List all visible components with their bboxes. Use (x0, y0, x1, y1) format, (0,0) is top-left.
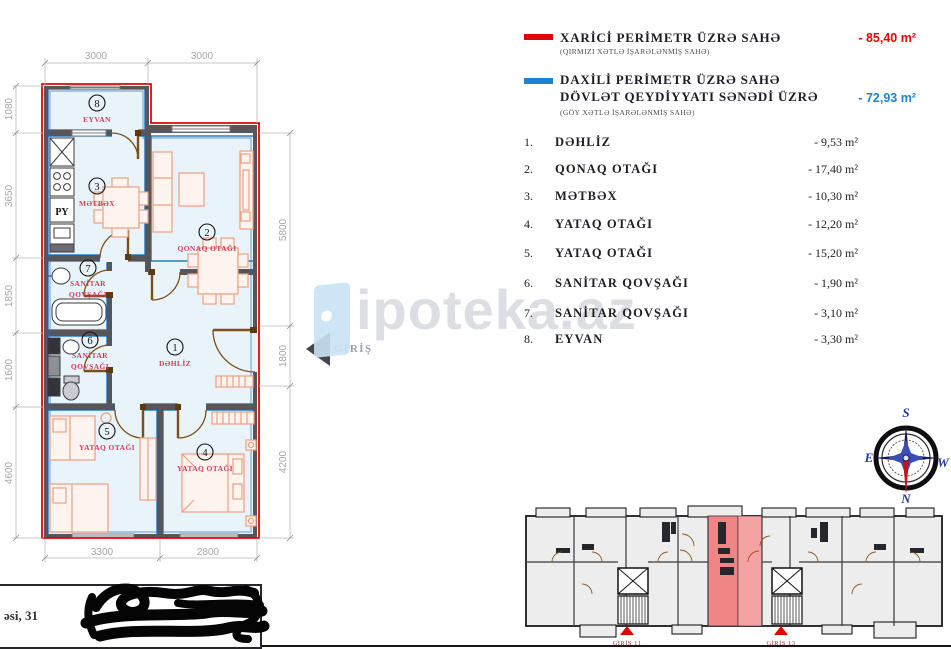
outer-perimeter-row: XARİCİ PERİMETR ÜZRƏ SAHƏ (QIRMIZI XƏTLƏ… (524, 30, 916, 66)
entrance1-triangle-icon (620, 626, 634, 635)
room-list-item: 7. SANİTAR QOVŞAĞI - 3,10 m² (524, 306, 916, 322)
inner-perimeter-value: - 72,93 m² (858, 91, 916, 105)
window-living (172, 126, 230, 132)
compass-n: N (900, 491, 911, 505)
svg-text:3650: 3650 (4, 184, 15, 207)
svg-text:2800: 2800 (197, 547, 220, 558)
svg-text:4200: 4200 (278, 450, 289, 473)
svg-text:6: 6 (87, 336, 92, 347)
svg-text:1080: 1080 (4, 97, 15, 120)
bed-small (50, 416, 95, 460)
svg-text:QONAQ OTAĞI: QONAQ OTAĞI (177, 243, 236, 253)
svg-text:MƏTBƏX: MƏTBƏX (79, 199, 115, 208)
redaction-scribble (78, 579, 270, 648)
svg-text:4600: 4600 (4, 461, 15, 484)
svg-text:2: 2 (204, 228, 209, 239)
svg-text:SANİTAR: SANİTAR (70, 278, 106, 288)
building-key-plan: GİRİŞ 11 GİRİŞ 13 (522, 504, 950, 648)
svg-text:DƏHLİZ: DƏHLİZ (159, 358, 191, 368)
window-eyvan (70, 86, 120, 89)
hatched-wardrobe (212, 412, 254, 424)
outer-perimeter-value: - 85,40 m² (858, 31, 916, 45)
compass-s: S (902, 405, 909, 420)
svg-text:QOVŞAĞI: QOVŞAĞI (71, 361, 109, 371)
svg-text:1: 1 (172, 343, 177, 354)
coffee-table (179, 173, 204, 206)
kitchen-appliances (50, 138, 74, 252)
outer-perimeter-subtitle: (QIRMIZI XƏTLƏ İŞARƏLƏNMİŞ SAHƏ) (560, 47, 710, 56)
svg-text:YATAQ OTAĞI: YATAQ OTAĞI (79, 442, 135, 452)
sofa (153, 152, 172, 232)
room-list-item: 5. YATAQ OTAĞI - 15,20 m² (524, 246, 916, 262)
floorplan-page: PY (0, 0, 951, 649)
svg-text:SANİTAR: SANİTAR (72, 350, 108, 360)
py-label: PY (55, 207, 69, 218)
compass-w: W (937, 455, 950, 470)
svg-text:YATAQ OTAĞI: YATAQ OTAĞI (177, 463, 233, 473)
room-list-item: 2. QONAQ OTAĞI - 17,40 m² (524, 162, 916, 178)
svg-text:EYVAN: EYVAN (83, 115, 111, 124)
door-logo-icon (314, 282, 350, 358)
room-list-item: 4. YATAQ OTAĞI - 12,20 m² (524, 217, 916, 233)
address-text: əsi, 31 (4, 608, 38, 624)
dining-table (198, 248, 238, 294)
outer-perimeter-title: XARİCİ PERİMETR ÜZRƏ SAHƏ (560, 30, 781, 46)
svg-text:1850: 1850 (4, 284, 15, 307)
room-list-item: 1. DƏHLİZ - 9,53 m² (524, 135, 916, 151)
highlighted-unit-secondary (738, 516, 762, 626)
compass-e: E (864, 450, 874, 465)
stove (50, 168, 74, 196)
svg-text:3: 3 (94, 182, 99, 193)
room-list-item: 6. SANİTAR QOVŞAĞI - 1,90 m² (524, 276, 916, 292)
blue-line-swatch (524, 78, 553, 84)
svg-text:QOVŞAĞI: QOVŞAĞI (69, 289, 107, 299)
svg-text:1800: 1800 (278, 344, 289, 367)
svg-text:3000: 3000 (191, 51, 214, 62)
compass-rose-icon: S E W N (862, 403, 950, 505)
svg-text:3300: 3300 (91, 547, 114, 558)
svg-text:7: 7 (85, 264, 90, 275)
inner-perimeter-title-line1: DAXİLİ PERİMETR ÜZRƏ SAHƏ (560, 72, 780, 88)
svg-text:1600: 1600 (4, 358, 15, 381)
svg-text:5800: 5800 (278, 218, 289, 241)
svg-text:3000: 3000 (85, 51, 108, 62)
inner-perimeter-row: DAXİLİ PERİMETR ÜZRƏ SAHƏ DÖVLƏT QEYDİYY… (524, 72, 916, 132)
room-list-item: 3. MƏTBƏX - 10,30 m² (524, 189, 916, 205)
entrance2-triangle-icon (774, 626, 788, 635)
apartment-floorplan: PY (0, 46, 345, 580)
room-list-item: 8. EYVAN - 3,30 m² (524, 332, 916, 348)
svg-text:5: 5 (104, 427, 109, 438)
inner-perimeter-title-line2: DÖVLƏT QEYDİYYATI SƏNƏDİ ÜZRƏ (560, 89, 818, 105)
red-line-swatch (524, 34, 553, 40)
hall-hatch-strip (216, 376, 253, 387)
bed (50, 484, 108, 532)
svg-text:8: 8 (94, 99, 99, 110)
inner-perimeter-subtitle: (GÖY XƏTLƏ İŞARƏLƏNMİŞ SAHƏ) (560, 108, 695, 117)
svg-text:4: 4 (202, 448, 208, 459)
window-eyvan-kitchen (72, 130, 106, 136)
toilet (63, 382, 79, 400)
sink (52, 268, 70, 284)
